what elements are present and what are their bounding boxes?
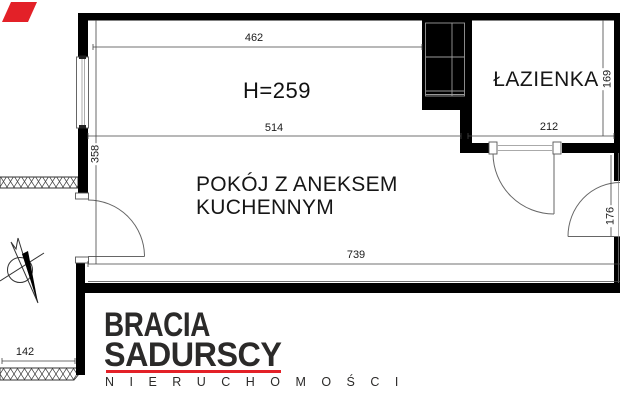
dimension-bathroom-width: 212 [538,122,560,133]
dimension-top-width: 462 [243,33,265,44]
dimension-bathroom-depth: 169 [603,68,614,90]
logo-tagline: N I E R U C H O M O Ś C I [105,376,404,389]
dimension-total-width: 739 [345,250,367,261]
hatched-wall-left [0,177,78,188]
logo-underline [106,370,281,373]
dimension-room-width: 514 [263,123,285,134]
floor-plan: 462 514 212 739 142 358 169 176 H=259 PO… [0,0,620,400]
ventilation-shaft [422,20,468,110]
logo-mark-shape [2,2,37,22]
logo-mark-icon [0,0,40,24]
dimension-entry-wall: 176 [606,205,617,227]
logo-brand-line2: SADURSCY [104,340,281,370]
hatched-wall-bottom [0,368,84,380]
room-label: POKÓJ Z ANEKSEM KUCHENNYM [196,173,398,219]
room-label-line2: KUCHENNYM [196,196,398,219]
window [77,56,89,129]
north-arrow-icon [0,238,44,303]
dimension-room-depth: 358 [91,143,102,165]
dimension-corridor-width: 142 [14,347,36,358]
bathroom-label: ŁAZIENKA [493,69,599,90]
room-label-line1: POKÓJ Z ANEKSEM [196,173,398,196]
bathroom-door [489,142,561,214]
room-door [76,193,145,263]
ceiling-height-note: H=259 [243,80,311,102]
